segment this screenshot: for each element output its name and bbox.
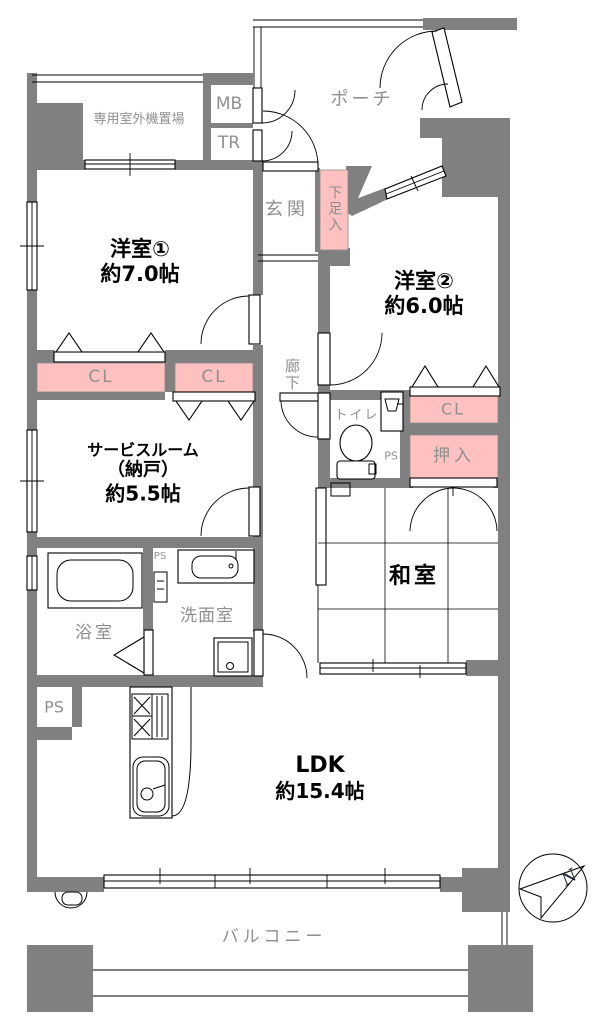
- washing-machine-fixture: [214, 638, 252, 676]
- label-porch: ポーチ: [331, 89, 394, 111]
- label-corridor: 廊下: [283, 358, 301, 392]
- label-washitsu: 和室: [389, 564, 439, 590]
- bathtub-fixture: [48, 553, 142, 608]
- windows: [20, 153, 466, 888]
- label-ps-mid: PS: [154, 551, 166, 563]
- kitchen-fixture: [130, 687, 191, 818]
- label-balcony: バルコニー: [222, 927, 327, 947]
- balcony-railing: [93, 912, 507, 996]
- label-washroom: 洗面室: [180, 606, 234, 626]
- label-service-room: サービスルーム （納戸） 約5.5帖: [87, 441, 199, 506]
- floor-plan: N 専用室外機置場 MB TR ポーチ 玄関 下足入 洋室① 約7.0帖 洋室②…: [0, 0, 600, 1034]
- label-oshiire: 押入: [433, 446, 475, 466]
- label-closet-1: CL: [88, 367, 113, 387]
- north-label: N: [557, 865, 582, 891]
- label-toilet: トイレ: [334, 408, 379, 424]
- label-outdoor-unit: 専用室外機置場: [93, 112, 184, 128]
- label-closet-3: CL: [441, 399, 465, 418]
- label-tr: TR: [218, 133, 240, 153]
- label-mb: MB: [216, 94, 242, 114]
- floorplan-drawing: N: [0, 0, 600, 1034]
- pipe-space-box: [154, 572, 167, 602]
- label-genkan: 玄関: [265, 199, 309, 221]
- label-ps-toilet: PS: [384, 449, 398, 462]
- label-room2: 洋室② 約6.0帖: [384, 269, 463, 319]
- washbasin-fixture: [178, 550, 254, 583]
- label-closet-2: CL: [201, 367, 226, 387]
- label-bath: 浴室: [75, 623, 115, 643]
- compass: N: [519, 854, 587, 922]
- label-ps-left: PS: [44, 697, 64, 716]
- label-room1: 洋室① 約7.0帖: [100, 237, 179, 287]
- label-shoe-box: 下足入: [326, 185, 343, 233]
- label-ldk: LDK 約15.4帖: [275, 753, 364, 803]
- balcony-faucet: [55, 892, 87, 908]
